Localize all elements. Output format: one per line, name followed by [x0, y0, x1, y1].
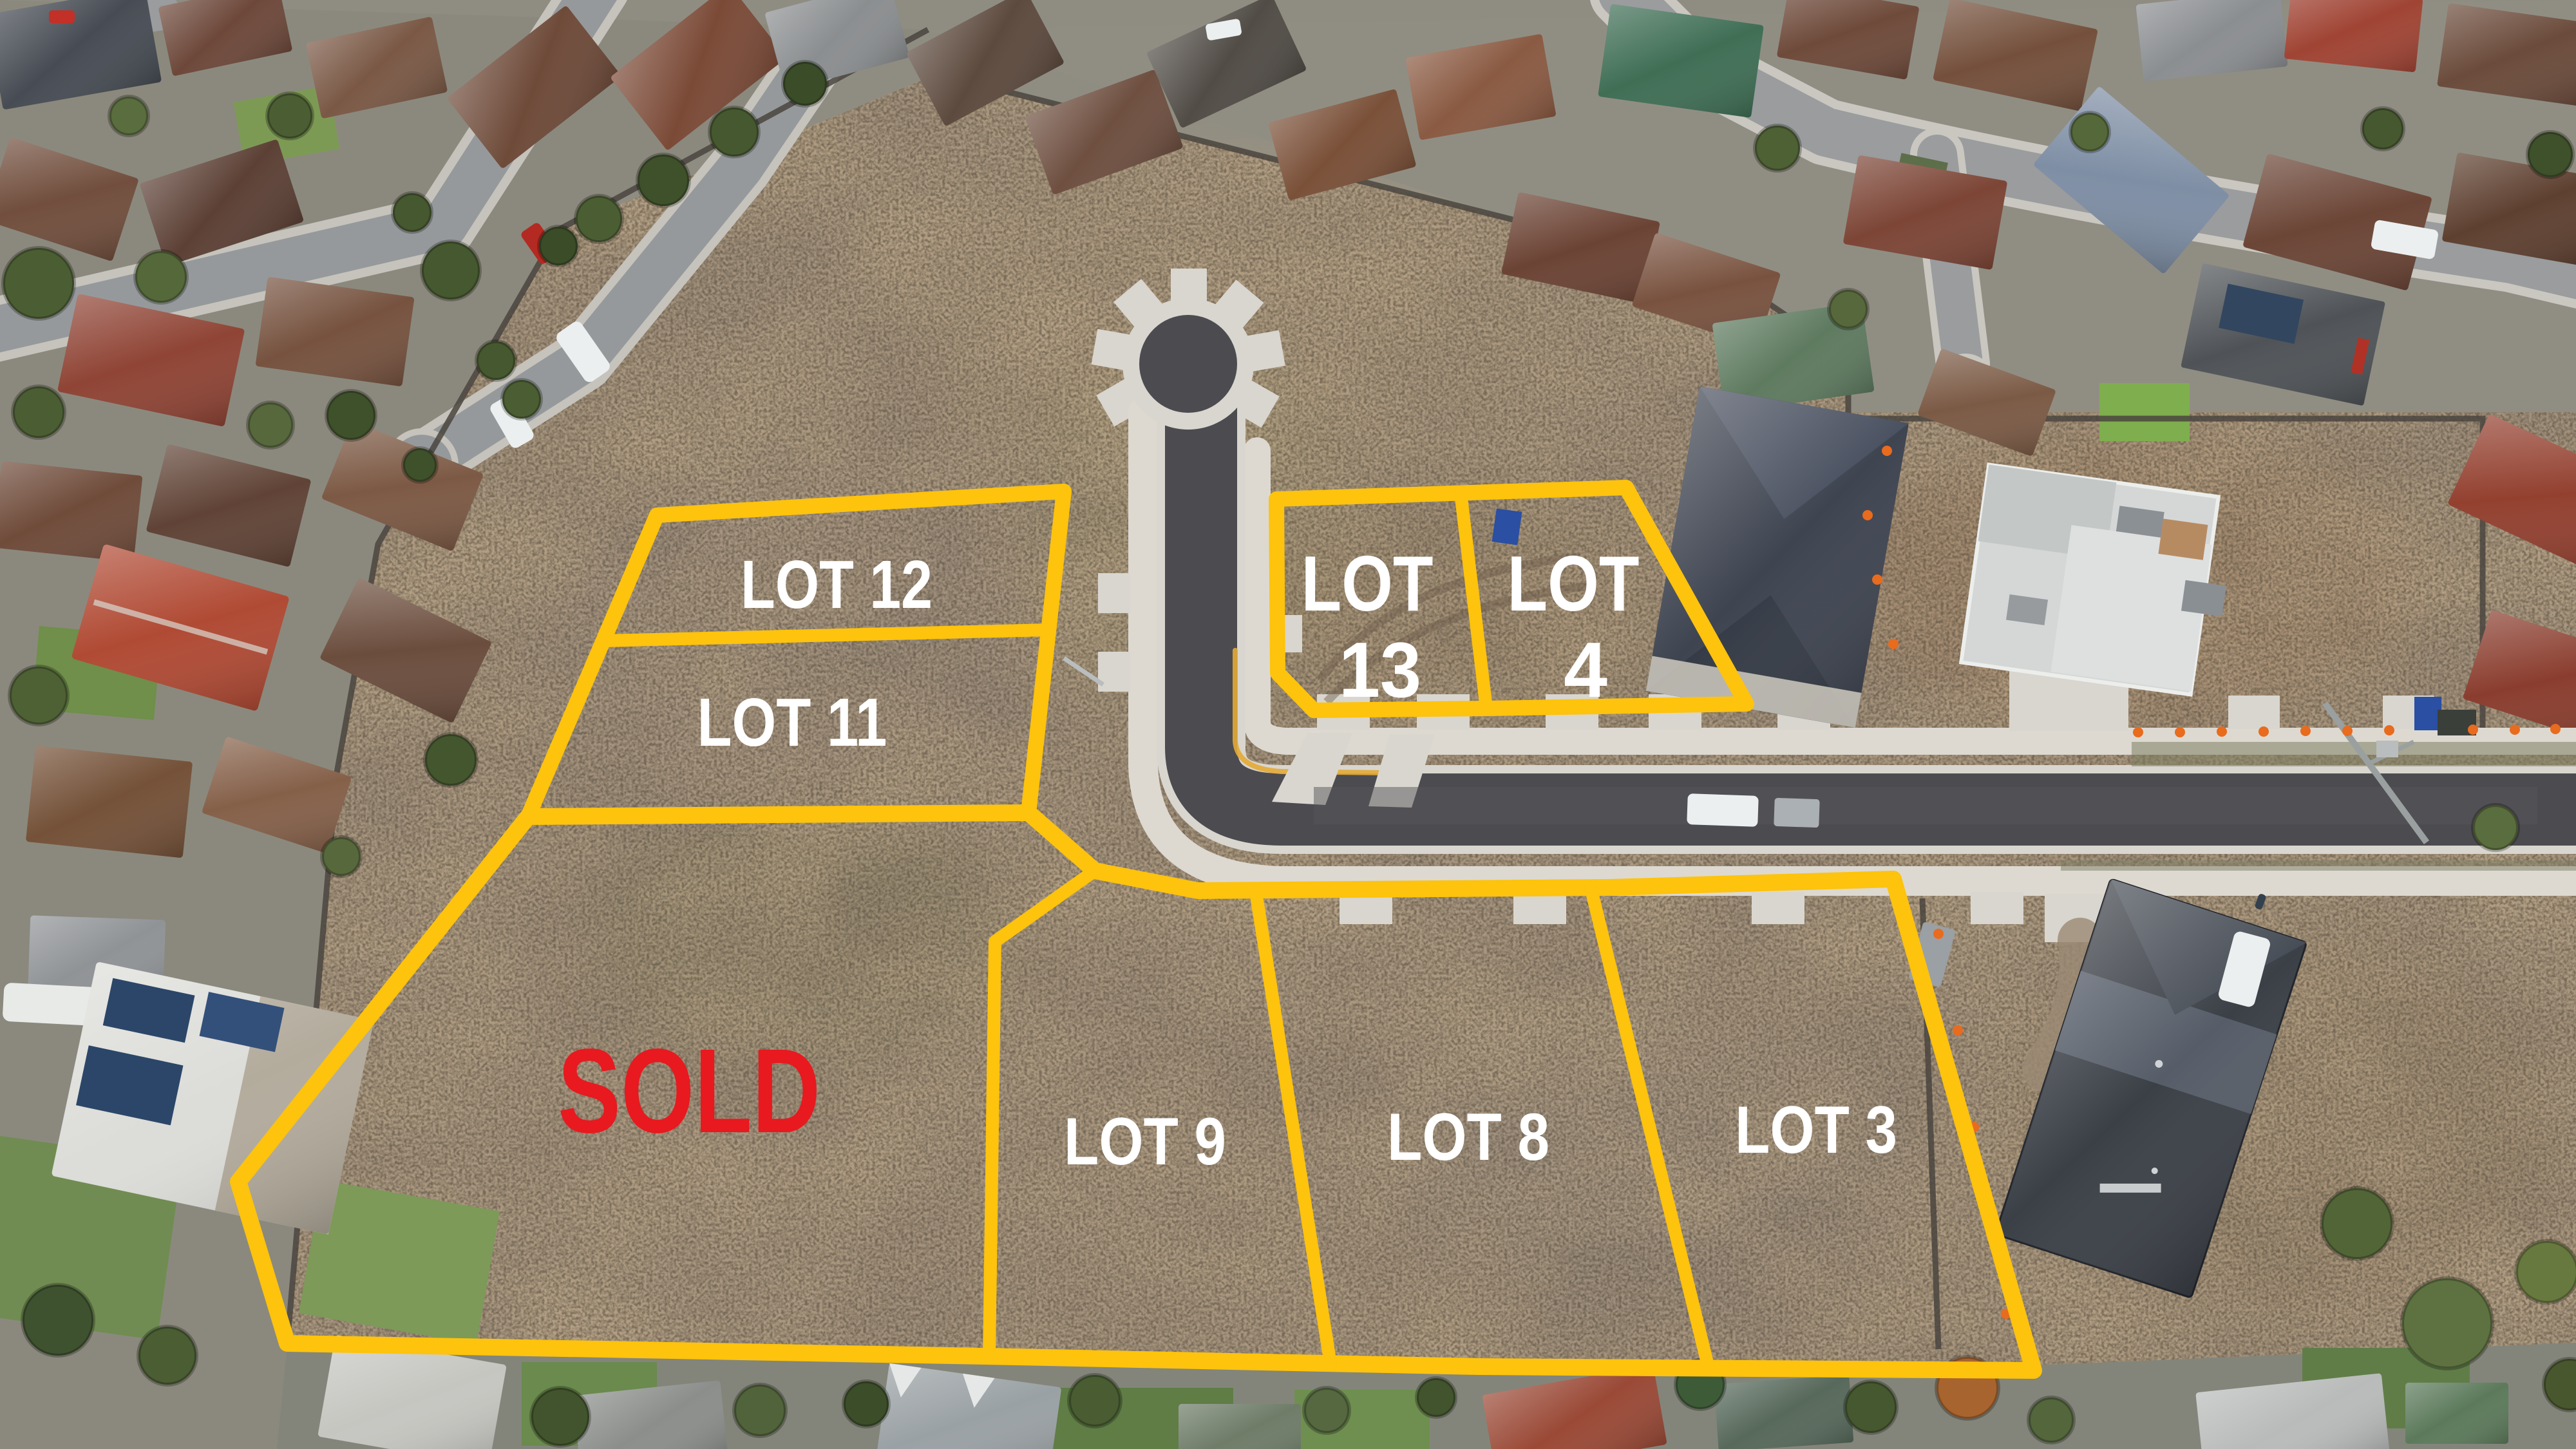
- aerial-photo-svg: LOT 12 LOT 11 LOT 13 LOT 4 LOT 9 LOT 8 L…: [0, 0, 2576, 1449]
- trailer: [1774, 798, 1819, 828]
- house: [2405, 1383, 2508, 1444]
- concrete-slab: [1961, 464, 2219, 694]
- house: [26, 746, 193, 858]
- pallet: [2158, 518, 2208, 560]
- aerial-photo: LOT 12 LOT 11 LOT 13 LOT 4 LOT 9 LOT 8 L…: [0, 0, 2576, 1449]
- lot-8-label: LOT 8: [1387, 1100, 1549, 1175]
- pallet: [2181, 580, 2226, 616]
- house: [1714, 1375, 1854, 1449]
- sold-label: SOLD: [558, 1025, 820, 1158]
- red-car: [49, 10, 75, 23]
- lot-3-label: LOT 3: [1735, 1093, 1897, 1168]
- house: [0, 461, 143, 562]
- lot-11-label: LOT 11: [697, 685, 887, 761]
- grass-verge: [2061, 860, 2576, 871]
- lot-9-label: LOT 9: [1064, 1104, 1226, 1179]
- house: [1179, 1404, 1301, 1449]
- white-truck: [1687, 793, 1759, 827]
- lot-12-label: LOT 12: [741, 547, 933, 623]
